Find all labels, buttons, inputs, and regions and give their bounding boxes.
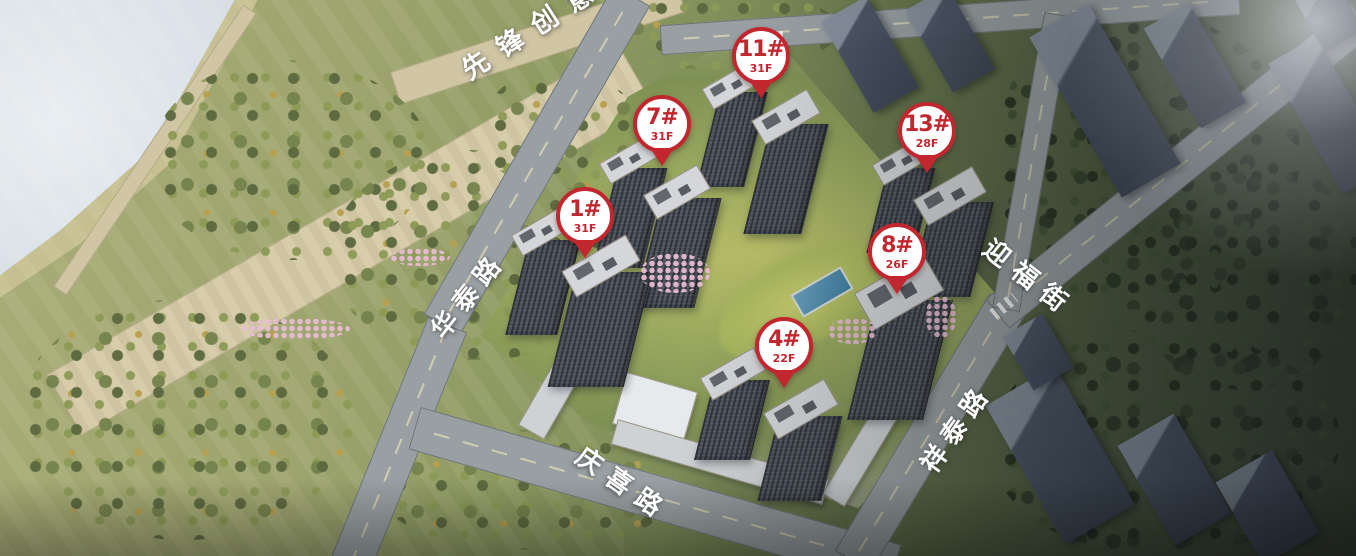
pin-bubble: 11# 31F (732, 27, 790, 85)
bottom-vignette (0, 0, 1356, 556)
pin-floor-count: 22F (773, 353, 796, 364)
pin-bubble: 8# 26F (868, 223, 926, 281)
building-pin-8[interactable]: 8# 26F (868, 223, 926, 294)
pin-building-number: 8# (881, 235, 913, 257)
building-pin-11[interactable]: 11# 31F (732, 27, 790, 98)
pin-floor-count: 26F (886, 259, 909, 270)
pin-tail (885, 276, 909, 294)
pin-floor-count: 28F (916, 138, 939, 149)
building-pin-13[interactable]: 13# 28F (898, 102, 956, 173)
pin-floor-count: 31F (651, 131, 674, 142)
building-pin-7[interactable]: 7# 31F (633, 95, 691, 166)
pin-tail (573, 240, 597, 258)
pin-building-number: 4# (768, 329, 800, 351)
pin-tail (650, 148, 674, 166)
pin-bubble: 7# 31F (633, 95, 691, 153)
pin-tail (915, 155, 939, 173)
aerial-site-map: 先锋创意 华泰路 迎福街 祥泰路 庆喜路 1# 31F 4# 22F 7# 31… (0, 0, 1356, 556)
pin-building-number: 7# (646, 107, 678, 129)
pin-floor-count: 31F (574, 223, 597, 234)
pin-building-number: 11# (738, 39, 784, 61)
building-pin-4[interactable]: 4# 22F (755, 317, 813, 388)
pin-floor-count: 31F (750, 63, 773, 74)
pin-bubble: 13# 28F (898, 102, 956, 160)
building-pin-1[interactable]: 1# 31F (556, 187, 614, 258)
pin-building-number: 13# (904, 114, 950, 136)
pin-tail (749, 80, 773, 98)
pin-bubble: 4# 22F (755, 317, 813, 375)
pin-bubble: 1# 31F (556, 187, 614, 245)
pin-building-number: 1# (569, 199, 601, 221)
pin-tail (772, 370, 796, 388)
